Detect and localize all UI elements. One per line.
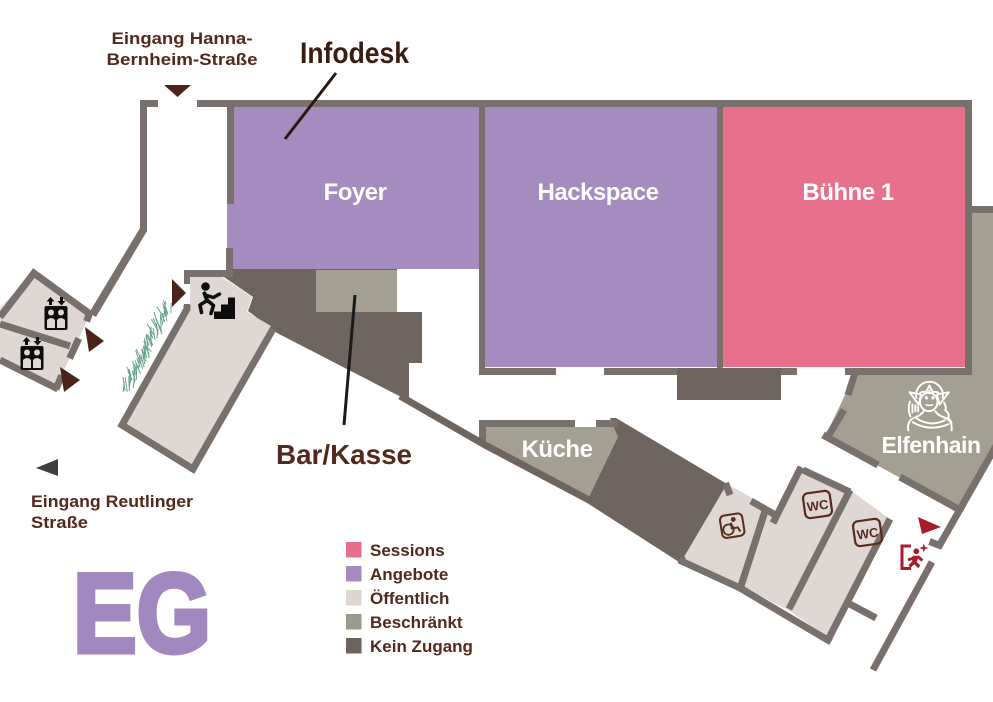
- svg-text:WC: WC: [806, 496, 830, 514]
- svg-text:Bernheim-Straße: Bernheim-Straße: [107, 50, 258, 69]
- svg-text:Bühne 1: Bühne 1: [802, 179, 893, 206]
- svg-text:Straße: Straße: [31, 513, 88, 532]
- svg-text:Küche: Küche: [522, 436, 593, 463]
- svg-text:Elfenhain: Elfenhain: [881, 432, 980, 458]
- svg-text:WC: WC: [856, 524, 880, 542]
- svg-text:Beschränkt: Beschränkt: [370, 613, 463, 632]
- svg-text:Bar/Kasse: Bar/Kasse: [276, 439, 412, 470]
- svg-text:Eingang Reutlinger: Eingang Reutlinger: [31, 492, 193, 511]
- svg-text:Sessions: Sessions: [370, 541, 445, 560]
- svg-text:Eingang Hanna-: Eingang Hanna-: [112, 29, 253, 48]
- svg-text:Hackspace: Hackspace: [538, 179, 659, 206]
- svg-text:Öffentlich: Öffentlich: [370, 589, 449, 608]
- svg-text:Infodesk: Infodesk: [300, 37, 409, 70]
- svg-text:Foyer: Foyer: [324, 179, 387, 206]
- svg-text:EG: EG: [73, 551, 211, 676]
- svg-text:Angebote: Angebote: [370, 565, 448, 584]
- svg-text:Kein Zugang: Kein Zugang: [370, 637, 473, 656]
